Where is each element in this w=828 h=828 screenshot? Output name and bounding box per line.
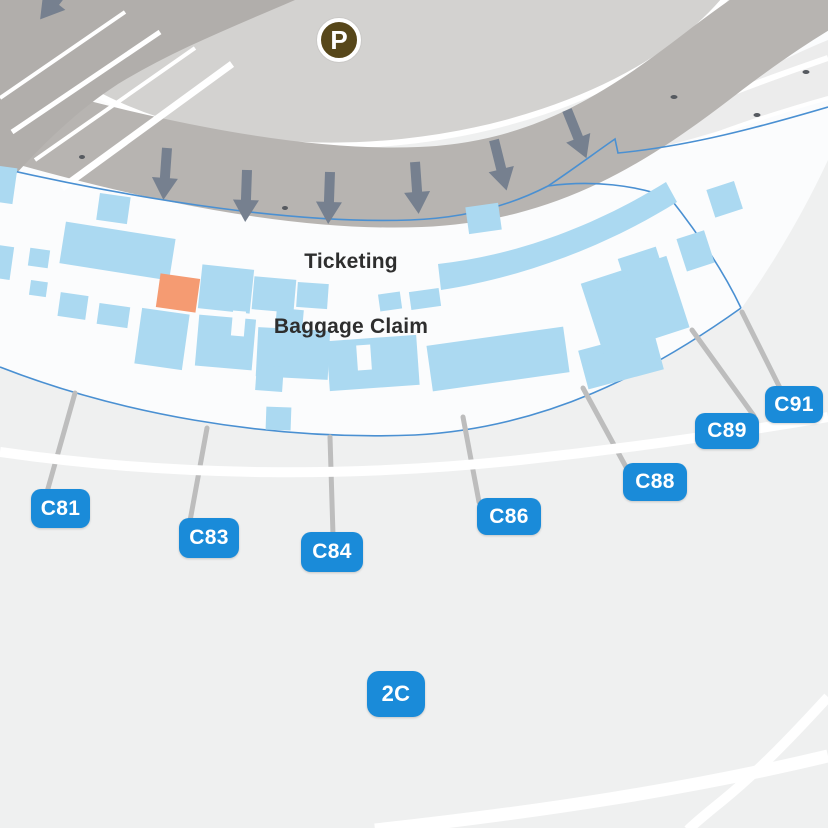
terminal-marker-2c[interactable]: 2C [367,671,425,717]
gate-marker-c81[interactable]: C81 [31,489,90,528]
baggage-claim-label: Baggage Claim [256,315,446,339]
gate-marker-c84[interactable]: C84 [301,532,363,572]
gate-marker-c86[interactable]: C86 [477,498,541,535]
gate-marker-c88[interactable]: C88 [623,463,687,501]
airport-terminal-map: P Ticketing Baggage Claim C81 C83 C84 C8… [0,0,828,828]
parking-symbol: P [330,25,347,56]
parking-icon[interactable]: P [317,18,361,62]
gate-marker-c83[interactable]: C83 [179,518,239,558]
gate-marker-c89[interactable]: C89 [695,413,759,449]
ticketing-label: Ticketing [278,250,424,274]
gate-marker-c91[interactable]: C91 [765,386,823,423]
highlighted-room[interactable] [156,273,200,312]
apron-road [0,417,828,828]
